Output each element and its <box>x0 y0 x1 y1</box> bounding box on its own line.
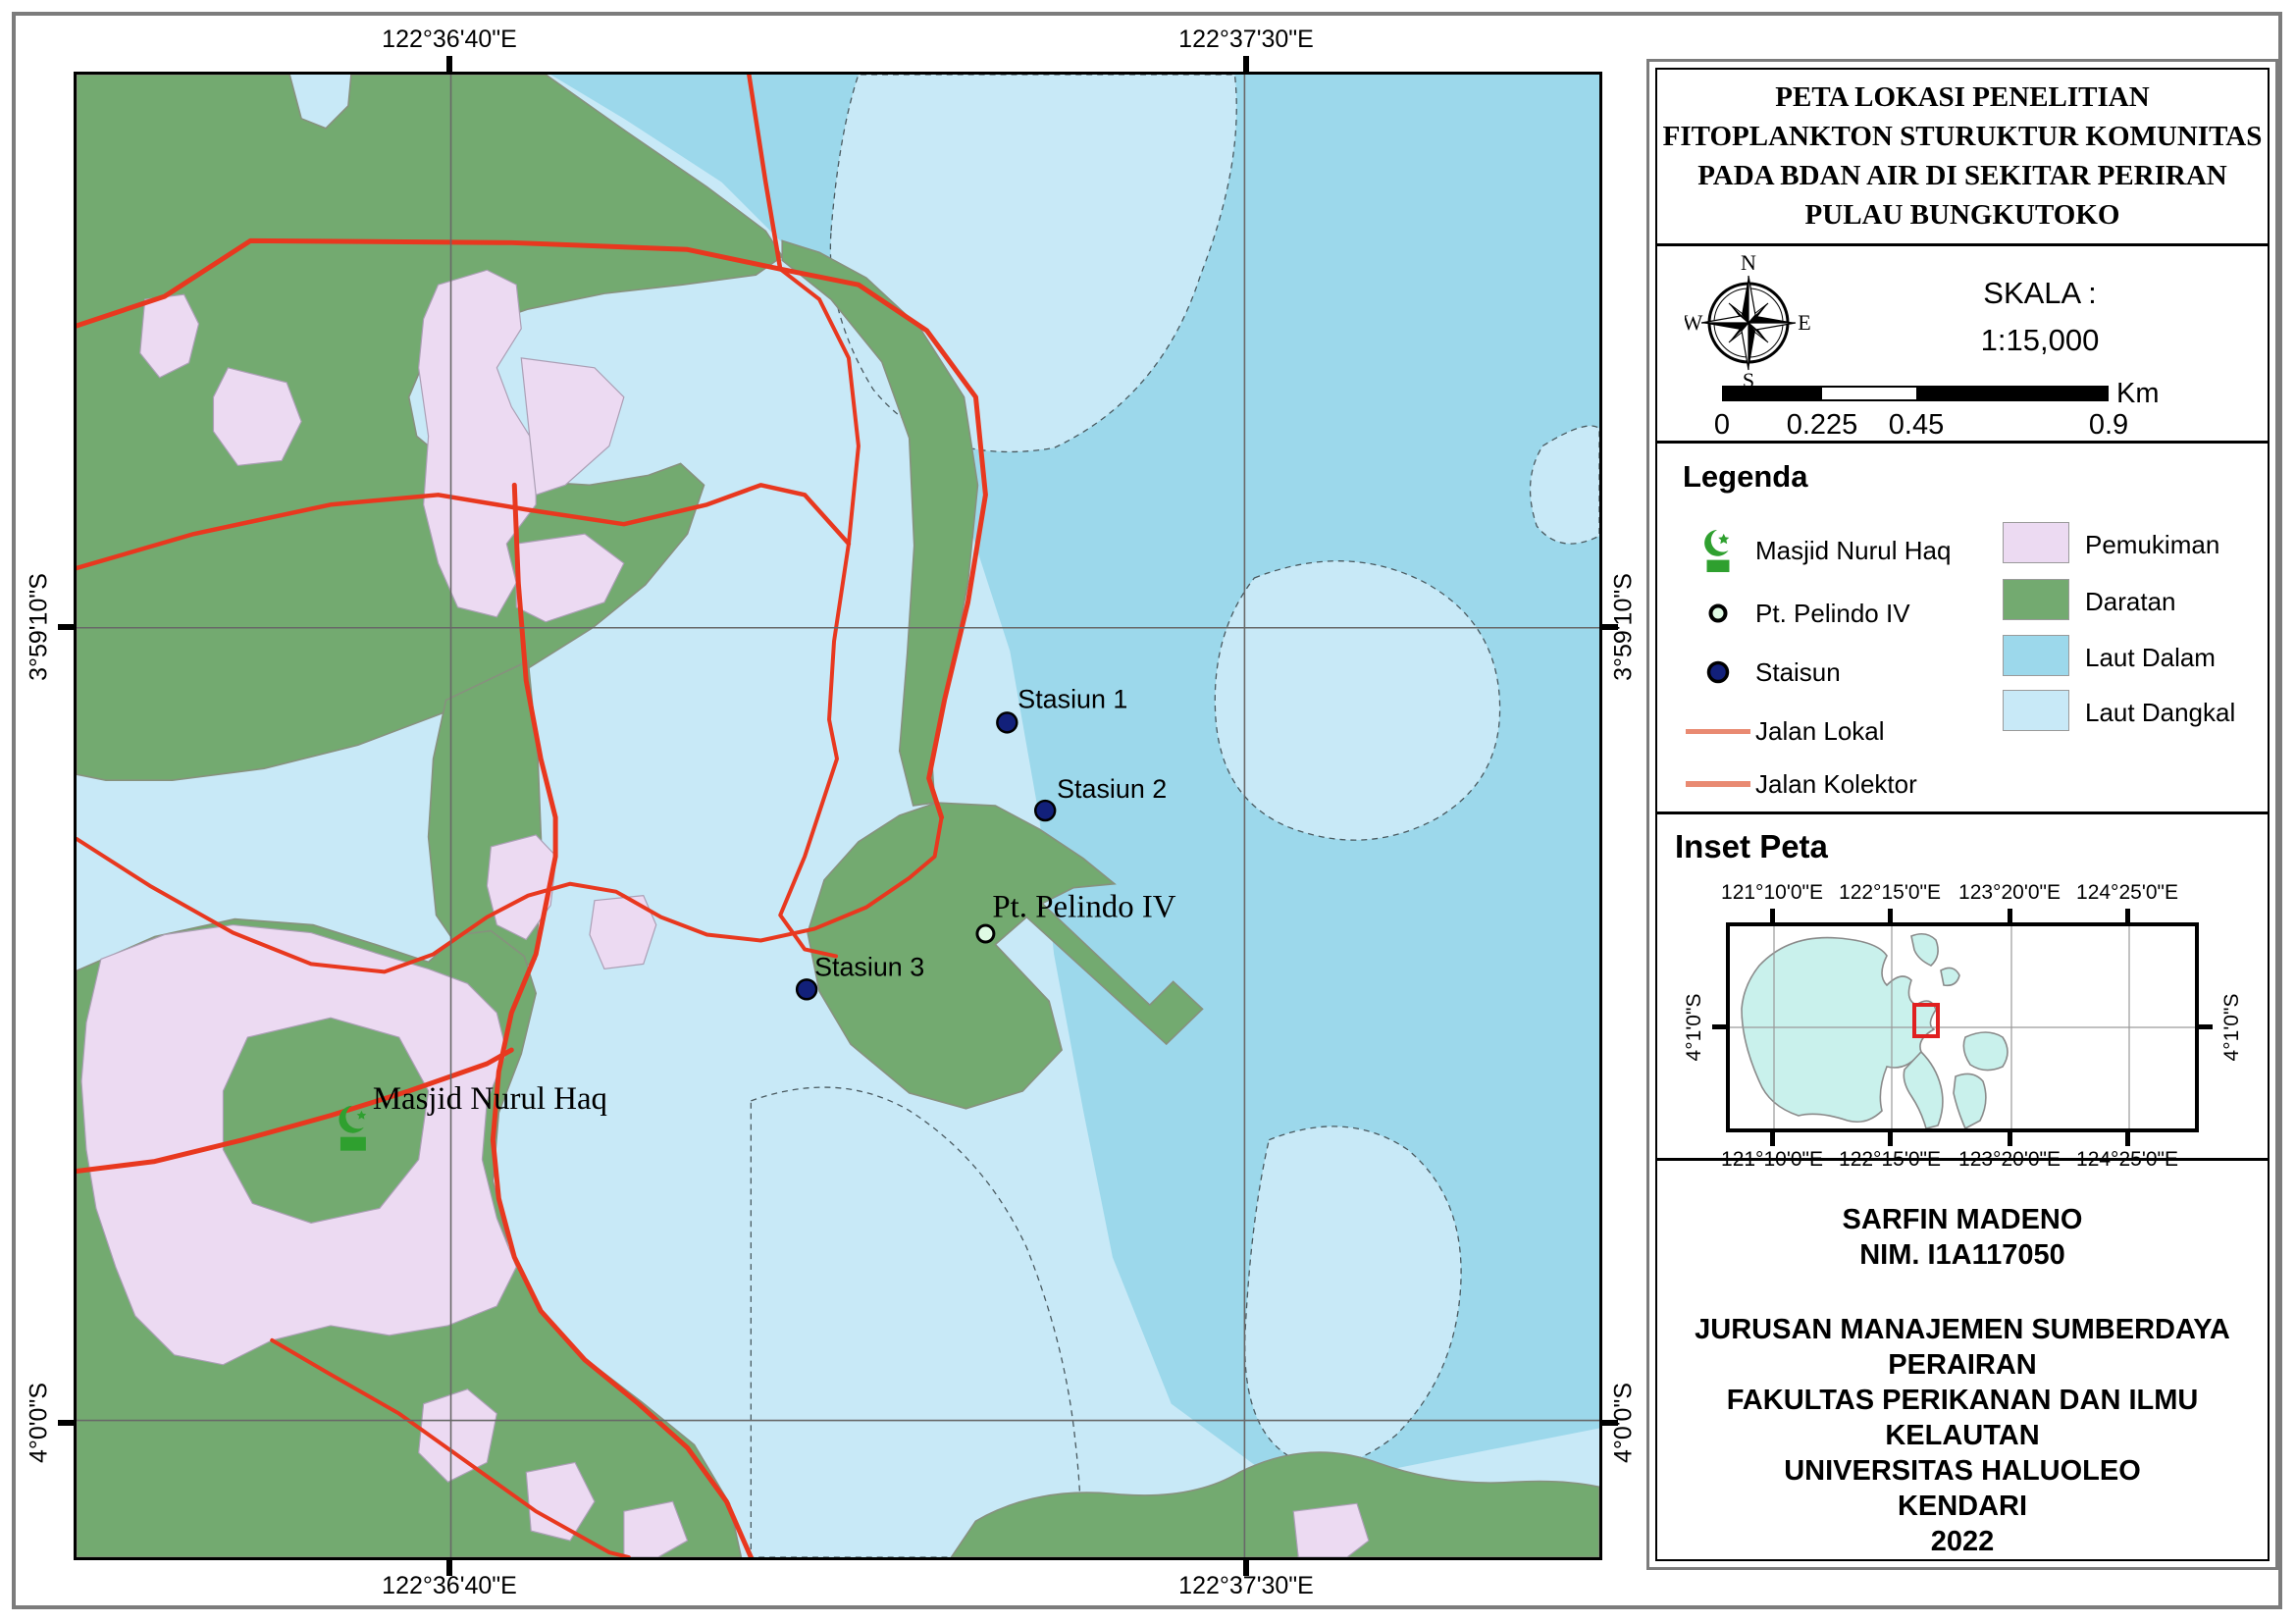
station-2-marker <box>1035 801 1055 820</box>
inset-xlabel-top-2: 122°15'0"E <box>1839 881 1941 905</box>
inset-tick <box>1770 1132 1775 1146</box>
compass-rose-icon: N S W E <box>1685 254 1812 392</box>
legend-label-laut-dalam: Laut Dalam <box>2085 643 2216 673</box>
coord-top-1: 122°36'40"E <box>382 26 517 54</box>
credit-fakultas: FAKULTAS PERIKANAN DAN ILMU KELAUTAN <box>1688 1383 2237 1453</box>
coord-bottom-1: 122°36'40"E <box>382 1572 517 1600</box>
station-3-marker <box>797 979 816 999</box>
coord-top-2: 122°37'30"E <box>1178 26 1314 54</box>
scale-block: N S W E SKALA : 1:15,000 Km 0 0.225 0.45… <box>1657 246 2268 444</box>
scale-unit: Km <box>2116 378 2160 410</box>
road-line-thick-icon <box>1686 781 1750 787</box>
scale-tick-0225: 0.225 <box>1787 409 1858 442</box>
title-line-2: FITOPLANKTON STURUKTUR KOMUNITAS <box>1663 117 2263 156</box>
credit-city: KENDARI <box>1688 1489 2237 1524</box>
credits-block: SARFIN MADENO NIM. I1A117050 JURUSAN MAN… <box>1657 1161 2268 1559</box>
tick-top-1 <box>446 56 452 72</box>
inset-ylabel-left: 4°1'0"S <box>1683 994 1706 1062</box>
title-line-1: PETA LOKASI PENELITIAN <box>1775 78 2149 117</box>
scale-tick-0: 0 <box>1714 409 1730 442</box>
skala-ratio: 1:15,000 <box>1893 323 2187 358</box>
credit-nim: NIM. I1A117050 <box>1688 1237 2237 1273</box>
inset-ylabel-right: 4°1'0"S <box>2220 994 2244 1062</box>
inset-xlabel-top-1: 121°10'0"E <box>1721 881 1823 905</box>
inset-island-east <box>1963 1032 2008 1071</box>
legend-title: Legenda <box>1683 459 1807 495</box>
pelindo-marker <box>977 925 994 942</box>
legend-item-pelindo: Pt. Pelindo IV <box>1681 599 1910 629</box>
map-canvas: Stasiun 1 Stasiun 2 Stasiun 3 Pt. Pelind… <box>77 75 1599 1557</box>
inset-title: Inset Peta <box>1675 828 1828 865</box>
coord-right-2: 4°0'0"S <box>1610 1383 1639 1463</box>
credit-universitas: UNIVERSITAS HALUOLEO <box>1688 1453 2237 1489</box>
credit-year: 2022 <box>1688 1524 2237 1559</box>
legend-label-pemukiman: Pemukiman <box>2085 530 2219 560</box>
legend-label-daratan: Daratan <box>2085 587 2176 617</box>
skala-label: SKALA : <box>1893 276 2187 311</box>
map-sheet: Stasiun 1 Stasiun 2 Stasiun 3 Pt. Pelind… <box>0 0 2296 1623</box>
inset-tick <box>2199 1024 2213 1029</box>
coord-bottom-2: 122°37'30"E <box>1178 1572 1314 1600</box>
title-line-3: PADA BDAN AIR DI SEKITAR PERIRAN <box>1697 156 2227 195</box>
inset-tick <box>1712 1024 1726 1029</box>
road-line-icon <box>1686 729 1750 734</box>
legend-label-masjid: Masjid Nurul Haq <box>1755 536 1951 566</box>
inset-tick <box>1770 909 1775 922</box>
settlement-se <box>1293 1503 1369 1557</box>
inset-tick <box>2008 1132 2012 1146</box>
legend-label-staisun: Staisun <box>1755 657 1841 688</box>
coord-right-1: 3°59'10"S <box>1610 573 1639 681</box>
swatch-daratan <box>2003 579 2069 620</box>
inset-xlabel-top-3: 123°20'0"E <box>1958 881 2061 905</box>
masjid-label: Masjid Nurul Haq <box>373 1081 607 1117</box>
credit-jurusan: JURUSAN MANAJEMEN SUMBERDAYA PERAIRAN <box>1688 1312 2237 1383</box>
mosque-icon <box>1702 530 1734 573</box>
scale-bar <box>1722 386 2109 401</box>
legend-label-jalan-lokal: Jalan Lokal <box>1755 716 1885 747</box>
legend-item-jalan-kolektor: Jalan Kolektor <box>1681 769 1917 800</box>
legend-label-jalan-kolektor: Jalan Kolektor <box>1755 769 1917 800</box>
info-panel: PETA LOKASI PENELITIAN FITOPLANKTON STUR… <box>1646 59 2278 1570</box>
inset-tick <box>2125 1132 2130 1146</box>
compass-w: W <box>1685 310 1703 335</box>
inset-tick <box>2008 909 2012 922</box>
inset-xlabel-top-4: 124°25'0"E <box>2076 881 2178 905</box>
title-block: PETA LOKASI PENELITIAN FITOPLANKTON STUR… <box>1657 70 2268 246</box>
station-2-label: Stasiun 2 <box>1057 774 1167 804</box>
inset-block: Inset Peta 121°10'0"E 122°15'0"E 123°20'… <box>1657 814 2268 1161</box>
legend-item-jalan-lokal: Jalan Lokal <box>1681 716 1885 747</box>
pelindo-marker-icon <box>1706 602 1730 625</box>
inset-tick <box>1888 909 1893 922</box>
inset-map <box>1726 922 2199 1132</box>
legend-item-masjid: Masjid Nurul Haq <box>1681 530 1951 573</box>
station-1-label: Stasiun 1 <box>1018 684 1127 713</box>
legend-item-staisun: Staisun <box>1681 657 1841 688</box>
legend-label-laut-dangkal: Laut Dangkal <box>2085 698 2235 728</box>
main-map: Stasiun 1 Stasiun 2 Stasiun 3 Pt. Pelind… <box>74 72 1602 1560</box>
scale-tick-09: 0.9 <box>2089 409 2128 442</box>
station-1-marker <box>997 712 1017 732</box>
compass-n: N <box>1741 254 1756 275</box>
coord-left-1: 3°59'10"S <box>26 573 54 681</box>
station-marker-icon <box>1705 659 1731 685</box>
credit-author: SARFIN MADENO <box>1688 1202 2237 1237</box>
coord-left-2: 4°0'0"S <box>26 1383 54 1463</box>
compass-e: E <box>1798 310 1810 335</box>
title-line-4: PULAU BUNGKUTOKO <box>1805 195 2120 235</box>
pelindo-label: Pt. Pelindo IV <box>992 890 1175 925</box>
swatch-pemukiman <box>2003 522 2069 563</box>
legend-label-pelindo: Pt. Pelindo IV <box>1755 599 1910 629</box>
station-3-label: Stasiun 3 <box>814 952 924 981</box>
inset-tick <box>2125 909 2130 922</box>
legend-block: Legenda Masjid Nurul Haq <box>1657 444 2268 815</box>
tick-top-2 <box>1243 56 1249 72</box>
swatch-laut-dalam <box>2003 635 2069 676</box>
tick-left-1 <box>58 624 74 630</box>
inset-tick <box>1888 1132 1893 1146</box>
scale-tick-045: 0.45 <box>1889 409 1944 442</box>
swatch-laut-dangkal <box>2003 690 2069 731</box>
tick-left-2 <box>58 1420 74 1426</box>
